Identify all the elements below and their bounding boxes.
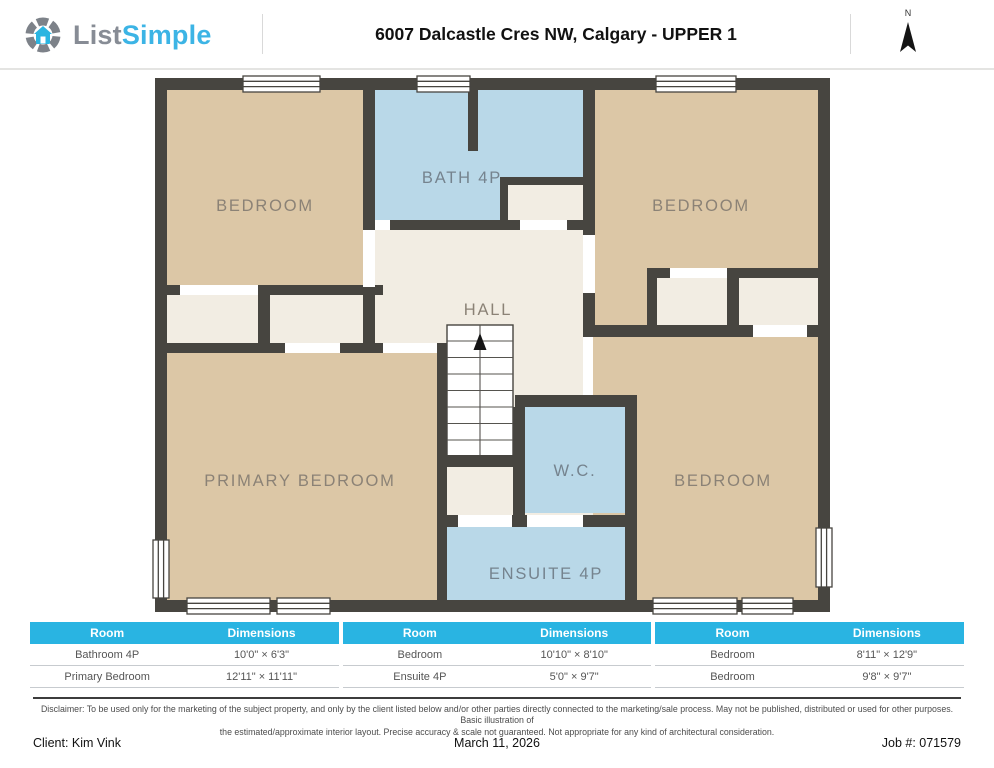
page-title: 6007 Dalcastle Cres NW, Calgary - UPPER … [262, 0, 850, 68]
disclaimer-line-1: Disclaimer: To be used only for the mark… [36, 704, 958, 727]
room-cell: Primary Bedroom [30, 666, 184, 687]
disclaimer: Disclaimer: To be used only for the mark… [36, 704, 958, 738]
room-cell: Ensuite 4P [343, 666, 497, 687]
column-header-room: Room [30, 622, 184, 644]
room-cell: Bedroom [343, 644, 497, 665]
window [243, 76, 320, 92]
table-row: Bedroom 10'10" × 8'10" [343, 644, 652, 666]
room-label-primary-bedroom: PRIMARY BEDROOM [204, 472, 395, 490]
date: March 11, 2026 [33, 736, 961, 750]
window [153, 540, 169, 598]
table-group-1: Room Dimensions Bathroom 4P 10'0" × 6'3"… [30, 622, 339, 688]
table-row: Ensuite 4P 5'0" × 9'7" [343, 666, 652, 688]
column-header-dimensions: Dimensions [184, 622, 338, 644]
logo-word-simple: Simple [122, 20, 212, 50]
room-label-hall: HALL [464, 301, 512, 319]
floor-plan: BEDROOM BATH 4P BEDROOM HALL PRIMARY BED… [150, 70, 840, 622]
listsimple-logo: ListSimple [22, 12, 212, 58]
room-label-bedroom-bottom-right: BEDROOM [674, 472, 772, 490]
column-header-dimensions: Dimensions [497, 622, 651, 644]
dimensions-table: Room Dimensions Bathroom 4P 10'0" × 6'3"… [30, 622, 964, 688]
north-arrow: N [888, 8, 928, 62]
table-row: Bedroom 8'11" × 12'9" [655, 644, 964, 666]
dimensions-cell: 10'10" × 8'10" [497, 644, 651, 665]
aperture-house-icon [22, 12, 66, 58]
dimensions-cell: 8'11" × 12'9" [810, 644, 964, 665]
table-row: Primary Bedroom 12'11" × 11'11" [30, 666, 339, 688]
room-cell: Bedroom [655, 644, 809, 665]
window [187, 598, 270, 614]
column-header-room: Room [343, 622, 497, 644]
footer: Client: Kim Vink March 11, 2026 Job #: 0… [33, 736, 961, 754]
table-header: Room Dimensions [343, 622, 652, 644]
header: ListSimple 6007 Dalcastle Cres NW, Calga… [0, 0, 994, 70]
window [417, 76, 470, 92]
table-group-2: Room Dimensions Bedroom 10'10" × 8'10" E… [343, 622, 652, 688]
logo-wordmark: ListSimple [73, 20, 212, 51]
column-header-room: Room [655, 622, 809, 644]
footer-divider [33, 697, 961, 699]
window [653, 598, 737, 614]
north-label: N [888, 8, 928, 18]
dimensions-cell: 12'11" × 11'11" [184, 666, 338, 687]
staircase [447, 325, 513, 457]
north-arrow-icon [890, 18, 926, 56]
room-label-bath: BATH 4P [422, 169, 502, 187]
floor-plan-page: ListSimple 6007 Dalcastle Cres NW, Calga… [0, 0, 994, 768]
window [277, 598, 330, 614]
room-cell: Bathroom 4P [30, 644, 184, 665]
room-label-bedroom-top-right: BEDROOM [652, 197, 750, 215]
dimensions-cell: 5'0" × 9'7" [497, 666, 651, 687]
room-cell: Bedroom [655, 666, 809, 687]
window [816, 528, 832, 587]
table-group-3: Room Dimensions Bedroom 8'11" × 12'9" Be… [655, 622, 964, 688]
job-number: Job #: 071579 [882, 736, 961, 750]
room-label-wc: W.C. [554, 462, 597, 480]
logo-word-list: List [73, 20, 122, 50]
room-label-ensuite: ENSUITE 4P [489, 565, 603, 583]
table-header: Room Dimensions [655, 622, 964, 644]
window [742, 598, 793, 614]
table-header: Room Dimensions [30, 622, 339, 644]
dimensions-cell: 9'8" × 9'7" [810, 666, 964, 687]
table-row: Bathroom 4P 10'0" × 6'3" [30, 644, 339, 666]
window [656, 76, 736, 92]
column-header-dimensions: Dimensions [810, 622, 964, 644]
dimensions-cell: 10'0" × 6'3" [184, 644, 338, 665]
header-divider-right [850, 14, 851, 54]
table-row: Bedroom 9'8" × 9'7" [655, 666, 964, 688]
room-label-bedroom-top-left: BEDROOM [216, 197, 314, 215]
